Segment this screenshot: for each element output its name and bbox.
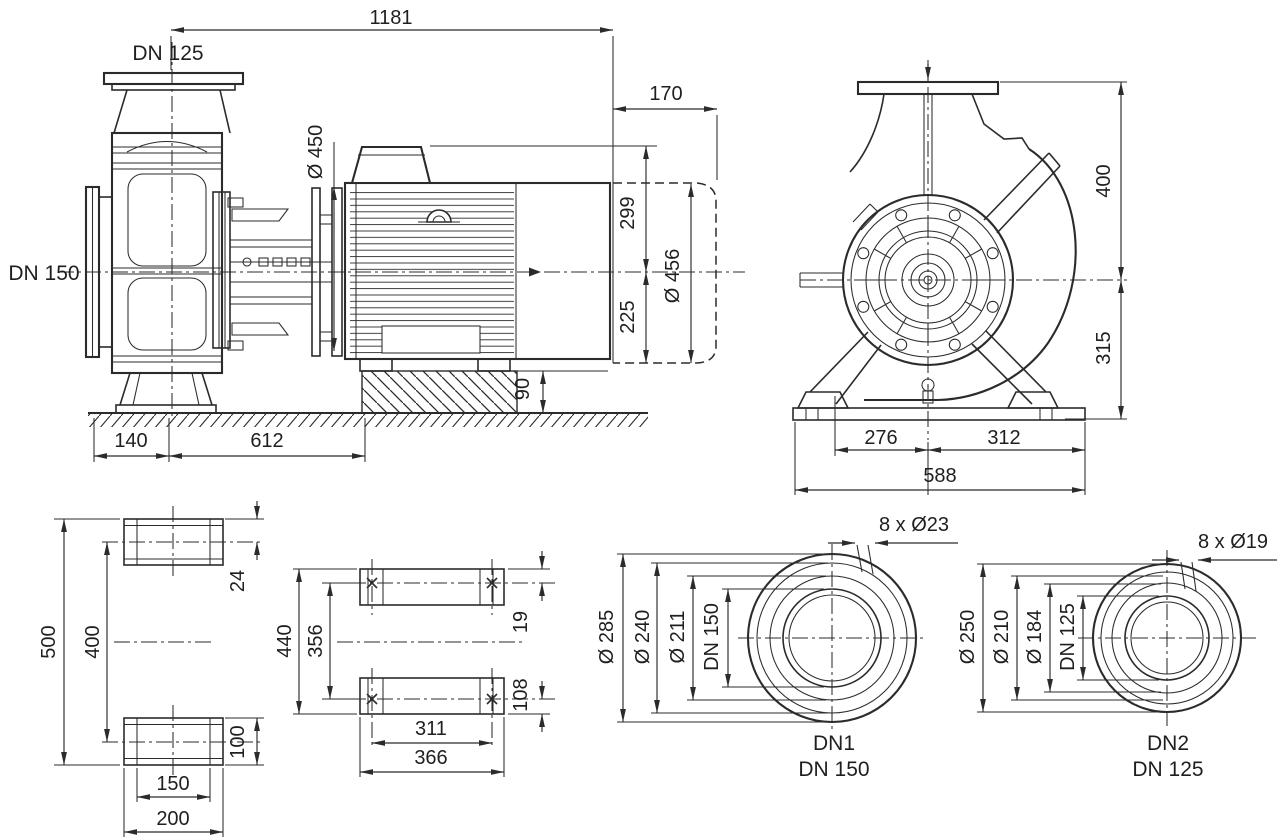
dim-pad-top-offset: 24	[227, 570, 249, 592]
dim-pad-width: 200	[156, 808, 189, 830]
flange-dn125-dimensions	[977, 560, 1277, 712]
dim-center-to-right-edge: 312	[987, 427, 1020, 449]
flange-dn125-bolt-circle: Ø 210	[991, 610, 1013, 664]
suction-flange-label: DN 150	[8, 262, 79, 285]
flange-dn125-bore: DN 125	[1057, 603, 1079, 671]
support-side-view: 500 400 24 100 150 200	[38, 501, 264, 837]
flange-dn125-bolt-holes: 8 x Ø19	[1198, 531, 1268, 553]
dim-plan-outer-width: 366	[414, 747, 447, 769]
flange-dn125-raised-face: Ø 184	[1024, 610, 1046, 664]
flange-dn150-outer-dia: Ø 285	[596, 610, 618, 664]
flange-dn150-port-size: DN 150	[798, 758, 869, 781]
end-view-dimensions	[795, 82, 1127, 495]
flange-dn150-bolt-circle: Ø 240	[632, 610, 654, 664]
dim-support-hole-centers: 400	[82, 625, 104, 658]
dim-flange-to-support: 140	[114, 430, 147, 452]
flange-dn125-view: 8 x Ø19 Ø 250 Ø 210 Ø 184 DN 125 DN2 DN …	[957, 531, 1277, 781]
terminal-box	[352, 147, 430, 183]
motor-nameplate	[382, 326, 480, 353]
dim-support-total-height: 500	[38, 625, 60, 658]
dim-plan-hole-centers-wide: 311	[415, 718, 447, 740]
side-view: DN 125 DN 150 1181 170 Ø 450 299 225 Ø 4…	[8, 7, 745, 462]
flange-dn125-outer-dia: Ø 250	[957, 610, 979, 664]
end-view-casing	[800, 82, 1076, 400]
dim-center-to-left-foot: 276	[864, 427, 897, 449]
dim-center-to-top: 299	[617, 196, 639, 229]
dim-motor-flange-dia: Ø 450	[305, 125, 327, 179]
dim-plan-hole-centers-long: 356	[305, 624, 327, 657]
flange-dn150-bolt-holes: 8 x Ø23	[879, 514, 949, 536]
dim-total-length: 1181	[369, 7, 412, 29]
flange-dn125-port-size: DN 125	[1132, 758, 1203, 781]
dim-plan-hole-offset-bottom: 108	[510, 678, 532, 711]
pump-casing	[112, 133, 222, 373]
plan-dimensions	[293, 551, 550, 777]
dim-pad-height: 100	[227, 725, 249, 758]
dim-plan-hole-offset-top: 19	[510, 611, 532, 633]
discharge-flange-label: DN 125	[132, 42, 203, 65]
flange-dn150-port-id: DN1	[813, 732, 855, 755]
discharge-flange-dn125	[104, 73, 243, 133]
flange-dn150-raised-face: Ø 211	[667, 611, 689, 664]
dim-support-to-foundation: 612	[250, 430, 283, 452]
dim-plan-outer-length: 440	[274, 624, 296, 657]
dim-foundation-height: 90	[512, 378, 534, 400]
dim-fan-cowl-dia: Ø 456	[662, 249, 684, 303]
dim-slot-centers: 150	[156, 773, 189, 795]
dim-flange-top-to-center: 400	[1093, 164, 1115, 197]
dim-base-width: 588	[923, 465, 956, 487]
dim-end-center-to-base: 315	[1093, 331, 1115, 364]
end-view: 400 315 276 312 588	[793, 60, 1127, 495]
support-plan-view: 440 356 19 108 311 366	[274, 551, 556, 777]
dim-center-to-base: 225	[617, 300, 639, 333]
flange-dn150-view: 8 x Ø23 Ø 285 Ø 240 Ø 211 DN 150 DN1 DN …	[596, 514, 958, 781]
technical-drawing-canvas: DN 125 DN 150 1181 170 Ø 450 299 225 Ø 4…	[0, 0, 1280, 839]
pump-pedestal	[116, 373, 216, 413]
flange-dn150-bore: DN 150	[701, 603, 723, 671]
flange-dn125-port-id: DN2	[1147, 732, 1189, 755]
foundation-block	[362, 371, 608, 413]
flange-dn150-centerlines	[738, 544, 926, 732]
pump-dimensional-drawing: DN 125 DN 150 1181 170 Ø 450 299 225 Ø 4…	[0, 0, 1280, 839]
dim-motor-extension: 170	[649, 83, 682, 105]
bolt-hole-marks	[367, 578, 497, 704]
motor	[345, 147, 610, 371]
